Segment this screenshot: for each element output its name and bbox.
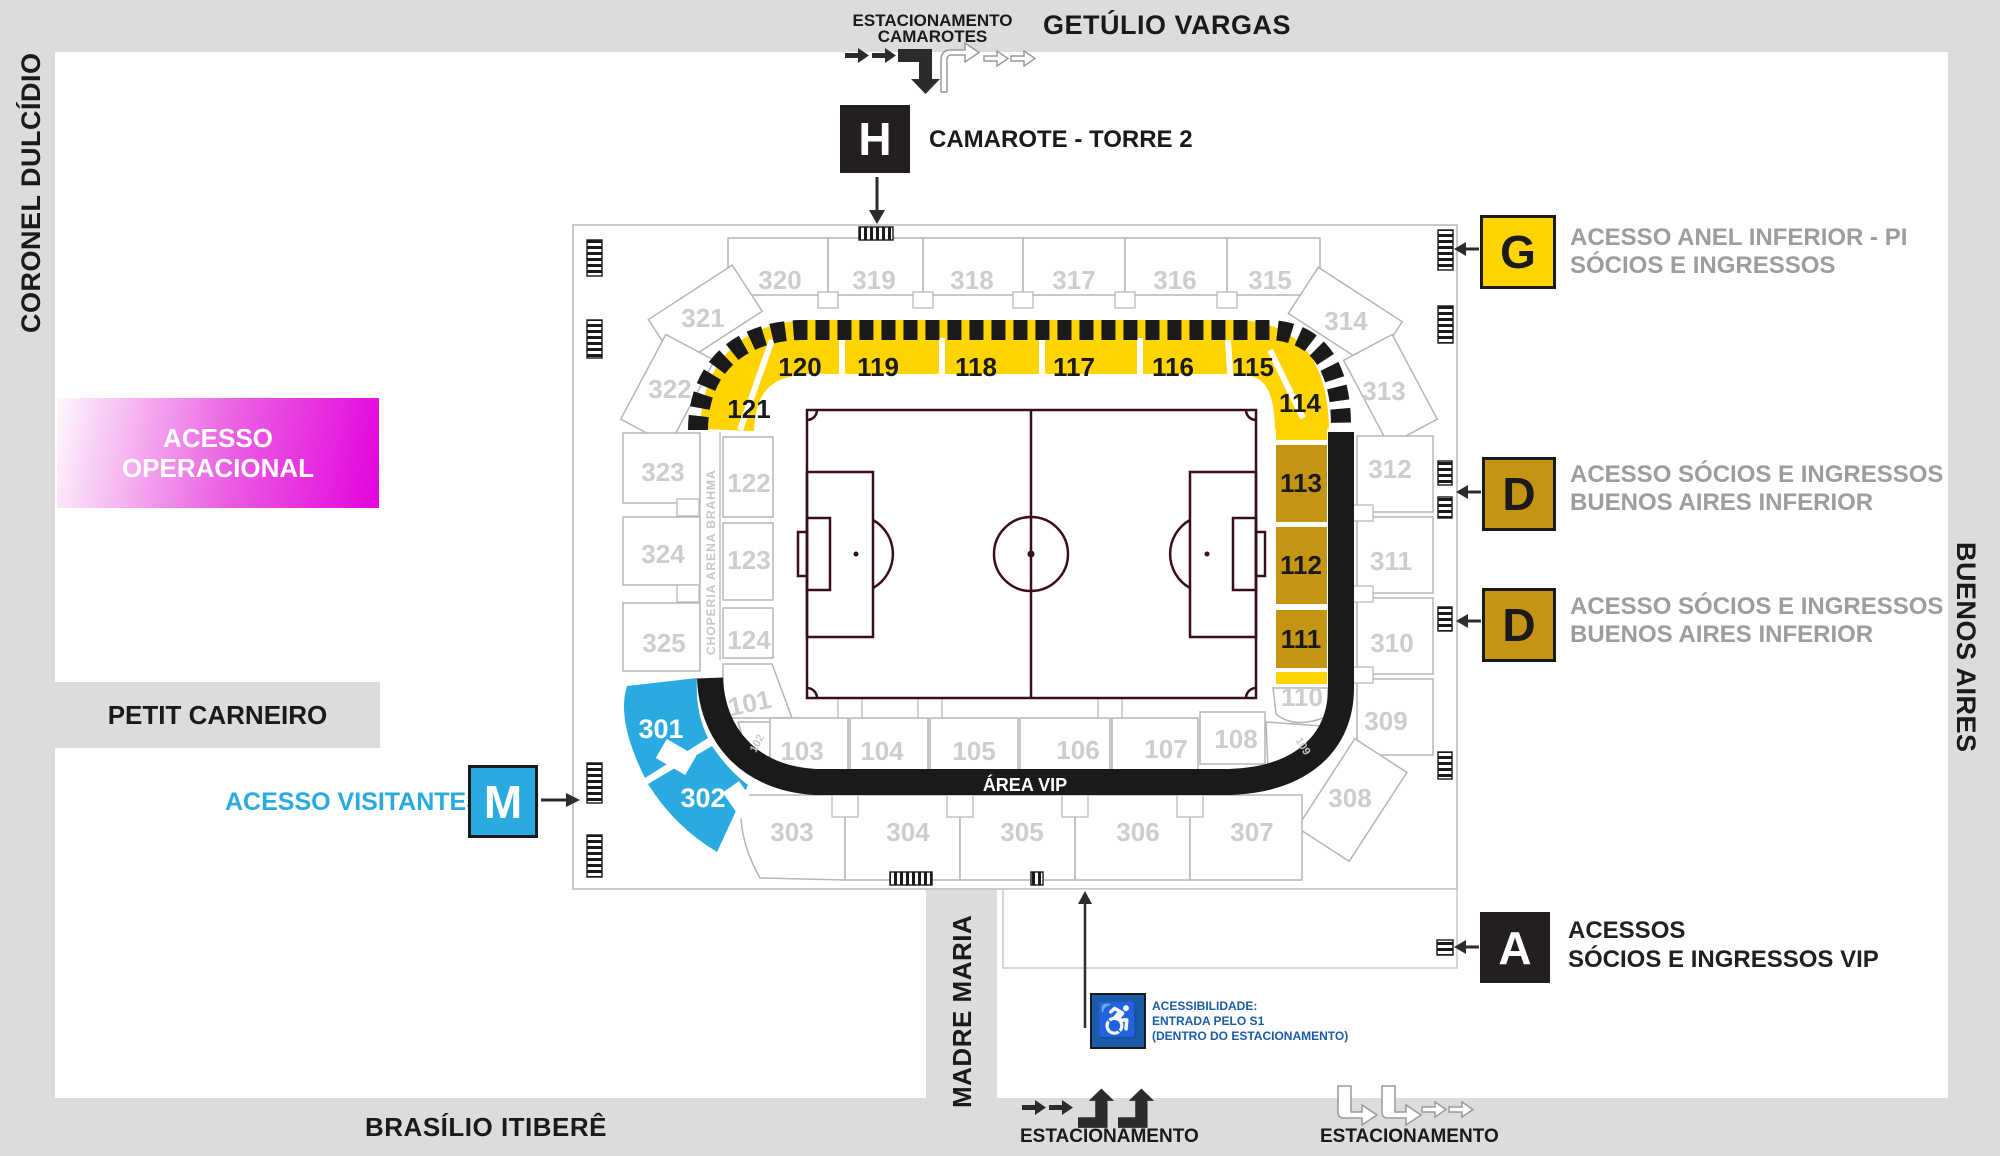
- gate-notch: [913, 292, 933, 308]
- turnstile-icon: [1437, 940, 1453, 955]
- section-label: 325: [642, 628, 685, 658]
- traffic-arrow-turn-up-icon: [1078, 1089, 1114, 1128]
- gate-h-arrow-icon: [869, 177, 885, 224]
- section-label: 304: [886, 817, 930, 847]
- gate-notch: [832, 795, 858, 817]
- section-label: 313: [1362, 376, 1405, 406]
- yellow-sliver-top: [1276, 427, 1327, 440]
- traffic-arrow-turn-up-icon: [1118, 1089, 1154, 1128]
- section-label: 319: [852, 265, 895, 295]
- section-label: 106: [1056, 735, 1099, 765]
- section-label: 306: [1116, 817, 1159, 847]
- turnstile-icon: [859, 227, 893, 240]
- turnstile-icon: [587, 240, 602, 276]
- section-label: 309: [1364, 706, 1407, 736]
- section-label: 113: [1280, 468, 1322, 498]
- turnstile-icon: [890, 872, 932, 885]
- turnstile-icon: [1031, 872, 1043, 885]
- turnstile-icon: [587, 835, 602, 877]
- section-label: 307: [1230, 817, 1273, 847]
- traffic-arrow-right-icon: [1011, 51, 1035, 66]
- traffic-arrow-turn-down-icon: [898, 49, 940, 94]
- gate-notch: [918, 698, 942, 718]
- traffic-arrow-right-icon: [845, 48, 869, 63]
- section-label: 314: [1324, 306, 1368, 336]
- traffic-arrow-turn-up-icon: [941, 43, 979, 92]
- section-label: 303: [770, 817, 813, 847]
- section-label: 316: [1153, 265, 1196, 295]
- section-label: 323: [641, 457, 684, 487]
- choperia-label: CHOPERIA ARENA BRAHMA: [704, 469, 718, 655]
- vip-parking-area: [1003, 889, 1457, 968]
- section-label: 103: [780, 736, 823, 766]
- section-label: 318: [950, 265, 993, 295]
- section-label: 115: [1232, 352, 1274, 382]
- gate-notch: [1115, 292, 1135, 308]
- turnstile-icon: [1438, 752, 1452, 779]
- section-label: 116: [1152, 352, 1194, 382]
- traffic-arrow-turn-right-icon: [1338, 1086, 1377, 1125]
- section-label: 119: [857, 352, 899, 382]
- gate-notch: [677, 585, 699, 602]
- traffic-arrow-right-icon: [1022, 1100, 1046, 1115]
- stadium-access-map: GETÚLIO VARGAS CORONEL DULCÍDIO BUENOS A…: [0, 0, 2000, 1156]
- stadium-map-svg: CHOPERIA ARENA BRAHMA: [0, 0, 2000, 1156]
- section-label: 124: [727, 625, 771, 655]
- gate-notch: [677, 499, 699, 516]
- traffic-arrow-right-icon: [872, 48, 896, 63]
- section-label: 112: [1280, 550, 1322, 580]
- turnstile-icon: [1438, 607, 1452, 631]
- gate-notch: [1353, 586, 1373, 602]
- section-label: 320: [758, 265, 801, 295]
- section-label: 117: [1053, 352, 1095, 382]
- section-label: 107: [1144, 734, 1187, 764]
- turnstile-icon: [1438, 461, 1452, 485]
- turnstile-icon: [1438, 230, 1453, 270]
- gate-notch: [1177, 795, 1203, 817]
- section-label: 120: [778, 352, 821, 382]
- gate-notch: [838, 698, 862, 718]
- turnstile-icon: [1438, 497, 1452, 518]
- gate-notch: [1013, 292, 1033, 308]
- turnstile-icon: [587, 763, 602, 803]
- section-label: 111: [1281, 624, 1322, 654]
- gate-notch: [1353, 667, 1373, 683]
- gate-notch: [1353, 505, 1373, 521]
- section-label: 121: [727, 394, 770, 424]
- section-label: 110: [1281, 682, 1323, 712]
- section-label: 305: [1000, 817, 1043, 847]
- section-label: 310: [1370, 628, 1413, 658]
- traffic-arrow-turn-right-icon: [1382, 1086, 1421, 1125]
- section-label: 322: [648, 374, 691, 404]
- section-label: 317: [1052, 265, 1095, 295]
- gate-notch: [818, 292, 838, 308]
- section-label: 108: [1214, 724, 1257, 754]
- section-label: 321: [681, 303, 724, 333]
- section-label: 311: [1370, 546, 1412, 576]
- section-label: 118: [955, 352, 997, 382]
- section-label: 302: [680, 783, 725, 813]
- gate-notch: [1098, 698, 1122, 718]
- section-label: 105: [952, 736, 995, 766]
- gate-notch: [947, 795, 973, 817]
- section-label: 315: [1248, 265, 1291, 295]
- section-label: 123: [727, 545, 770, 575]
- traffic-arrow-right-icon: [984, 51, 1008, 66]
- area-vip-label: ÁREA VIP: [983, 774, 1067, 795]
- section-label: 312: [1368, 454, 1411, 484]
- traffic-arrow-right-icon: [1049, 1100, 1073, 1115]
- section-label: 301: [638, 714, 683, 744]
- section-label: 104: [860, 736, 904, 766]
- section-label: 114: [1279, 388, 1321, 418]
- traffic-arrow-right-icon: [1449, 1102, 1473, 1117]
- section-label: 308: [1328, 783, 1371, 813]
- gate-d2-arrow-icon: [1456, 614, 1481, 628]
- turnstile-icon: [1438, 306, 1453, 343]
- gate-notch: [1217, 292, 1237, 308]
- turnstile-icon: [587, 320, 602, 358]
- gate-notch: [1062, 795, 1088, 817]
- section-label: 122: [727, 468, 770, 498]
- traffic-arrow-right-icon: [1422, 1102, 1446, 1117]
- gate-d1-arrow-icon: [1456, 485, 1481, 499]
- section-label: 324: [641, 539, 685, 569]
